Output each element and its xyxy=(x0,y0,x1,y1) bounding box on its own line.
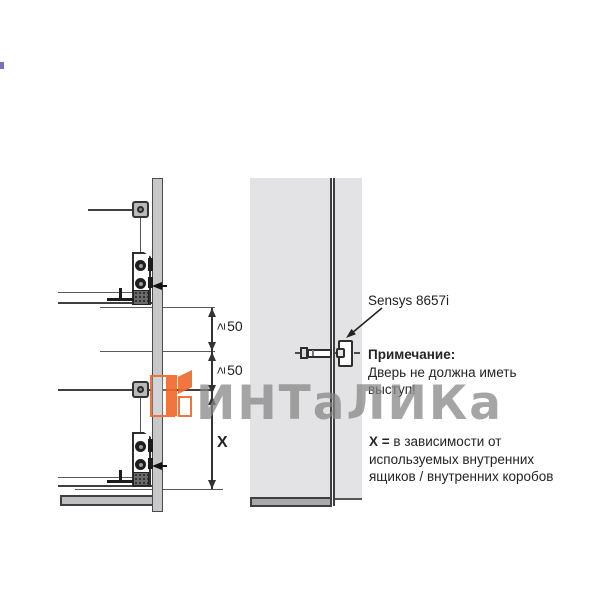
dim-arrow-up-2 xyxy=(208,352,216,361)
lower-cam-screw-icon xyxy=(137,386,144,393)
x-equals: X = xyxy=(369,434,390,449)
upper-bracket-cam-1 xyxy=(135,260,146,271)
lower-bracket-cam-2 xyxy=(135,459,146,470)
door-panel xyxy=(250,178,330,497)
dim-arrow-down-1 xyxy=(208,342,216,351)
upper-cam-screw-icon xyxy=(137,206,144,213)
lower-bracket-knurl xyxy=(133,472,149,486)
x-dim-baseline xyxy=(75,489,223,490)
note-title: Примечание: xyxy=(368,346,517,364)
lower-bracket-cam-1 xyxy=(135,441,146,452)
scan-artifact xyxy=(0,62,4,69)
upper-bracket-pin xyxy=(119,288,122,300)
upper-rail-line-1 xyxy=(58,292,134,293)
upper-cam-fitting xyxy=(132,201,149,218)
lower-rail-line-1 xyxy=(58,477,134,478)
x-definition-line-3: ящиков / внутренних коробов xyxy=(369,468,553,486)
gte-symbol: ≥ xyxy=(213,367,228,374)
hinge-leader-arrow-icon xyxy=(340,303,386,343)
dim-label-x: X xyxy=(217,434,228,452)
logo-bar xyxy=(166,375,177,416)
hinge-screw-tick xyxy=(312,350,314,356)
lower-cam-fitting xyxy=(132,381,149,398)
door-edge-lines xyxy=(330,178,335,506)
x-definition-line-2: используемых внутренних xyxy=(369,451,553,469)
x-definition-block: X = в зависимости от используемых внутре… xyxy=(369,433,553,486)
watermark-text: ИНТаЛИКа xyxy=(196,376,503,431)
lower-position-arrow-tail xyxy=(160,465,167,467)
x-definition-line-1: X = в зависимости от xyxy=(369,433,553,451)
upper-bracket-lug-1 xyxy=(148,258,153,271)
lower-stem-line xyxy=(140,398,141,432)
upper-cam-line xyxy=(88,209,134,211)
logo-flag xyxy=(178,370,192,394)
upper-bracket-knurl xyxy=(133,290,149,305)
hinge-nut xyxy=(336,348,345,358)
logo-outline-box-2 xyxy=(178,396,192,417)
hinge-name-label: Sensys 8657i xyxy=(368,293,449,308)
upper-bracket-cam-2 xyxy=(135,278,146,289)
bottom-shelf-bar xyxy=(60,495,163,506)
upper-position-arrow-tail xyxy=(160,285,167,287)
gte-symbol: ≥ xyxy=(213,323,228,330)
lower-bracket-pin xyxy=(119,470,122,482)
hinge-screw-body xyxy=(307,349,332,358)
dim-arrow-down-3 xyxy=(208,480,216,489)
intalika-logo-icon xyxy=(150,370,194,419)
dim-arrow-up-1 xyxy=(208,308,216,317)
assembly-instruction-page: ≥50 ≥50 X Sensys 8657i Примечание: Дверь… xyxy=(0,0,600,600)
door-bottom-band xyxy=(250,497,332,507)
lower-bracket-lug-1 xyxy=(148,439,153,452)
dim-label-50-upper: ≥50 xyxy=(217,318,243,334)
upper-stem-line xyxy=(140,218,141,252)
